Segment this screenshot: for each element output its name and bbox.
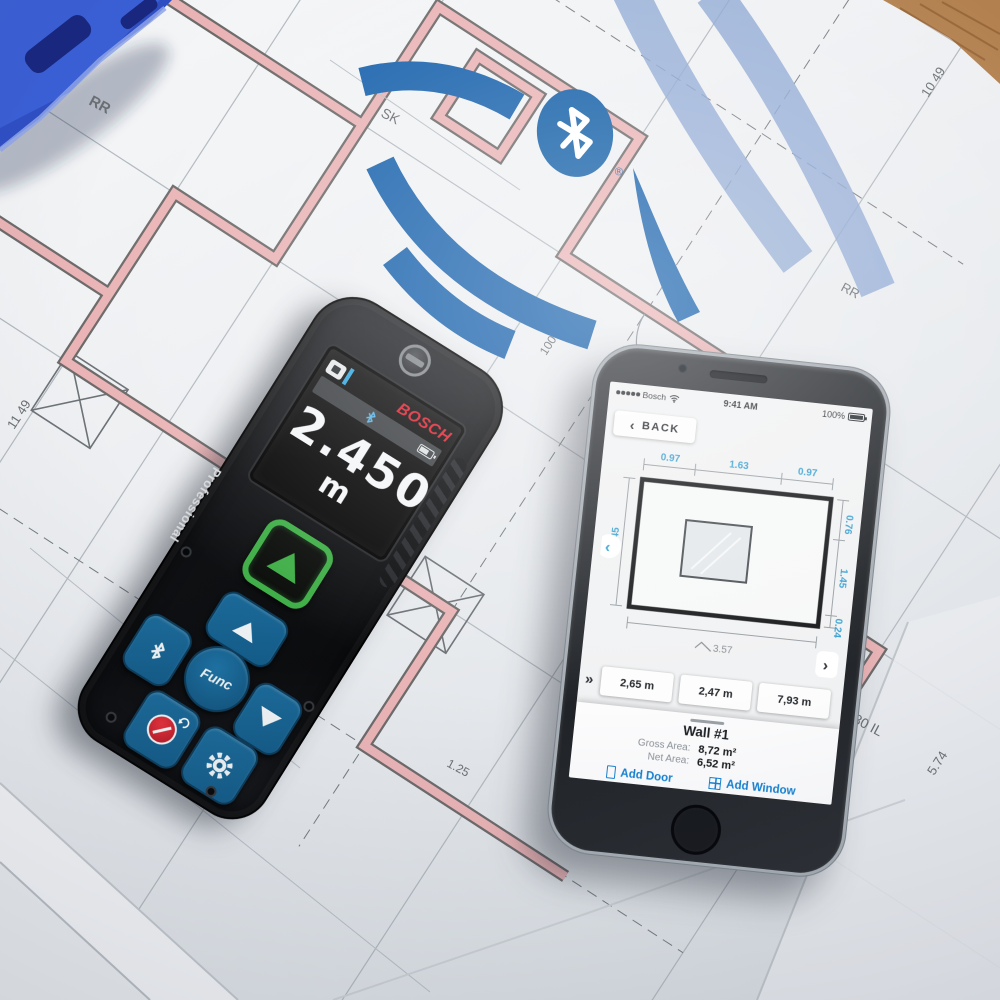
registered-mark: ® <box>614 166 624 179</box>
triangle-down-icon <box>253 705 282 732</box>
battery-icon <box>848 412 866 422</box>
bluetooth-logo: ® <box>531 84 624 189</box>
dim-top-middle: 1.63 <box>729 459 750 472</box>
dim-right-bottom: 0.24 <box>831 618 844 639</box>
device-battery-icon <box>416 443 435 460</box>
bluetooth-key-icon <box>144 637 170 663</box>
dim-right-top: 0.76 <box>842 515 855 536</box>
window-shape[interactable] <box>680 520 751 583</box>
next-wall-arrow[interactable]: › <box>815 651 840 679</box>
bluetooth-status-icon <box>362 408 380 426</box>
battery-percent: 100% <box>822 409 846 421</box>
dim-bottom-total: 3.57 <box>712 644 733 657</box>
phone-screen: Bosch 9:41 AM 100% ‹ BACK <box>569 381 873 804</box>
window-icon <box>709 776 722 789</box>
dim-top-right: 0.97 <box>797 467 818 480</box>
scene: RR SK 11 49 10 49 RR 100 1.25 5.74 80 IL <box>0 0 1000 1000</box>
dim-right-middle: 1.45 <box>836 568 849 589</box>
chevron-left-icon: ‹ <box>629 416 637 433</box>
measurement-chip[interactable]: 2,47 m <box>678 674 753 710</box>
triangle-up-icon <box>266 544 309 584</box>
wall-diagram: 0.97 1.63 0.97 2.45 0.76 1.45 0.24 3.57 <box>589 442 858 683</box>
dim-top-left: 0.97 <box>660 452 681 465</box>
signal-arcs-light <box>630 0 878 290</box>
double-chevron-icon: » <box>584 670 594 688</box>
add-door-button[interactable]: Add Door <box>606 765 673 785</box>
power-slash-icon <box>141 709 182 750</box>
signal-arc-tapered <box>633 168 700 322</box>
undo-arrow-icon <box>174 713 193 732</box>
smartphone: Bosch 9:41 AM 100% ‹ BACK <box>547 344 890 877</box>
door-icon <box>606 765 616 779</box>
triangle-up-icon <box>232 616 261 643</box>
back-button[interactable]: ‹ BACK <box>613 410 697 443</box>
measurement-chip[interactable]: 2,65 m <box>600 666 675 702</box>
gear-icon <box>202 748 238 784</box>
measurement-chip[interactable]: 7,93 m <box>757 683 832 719</box>
